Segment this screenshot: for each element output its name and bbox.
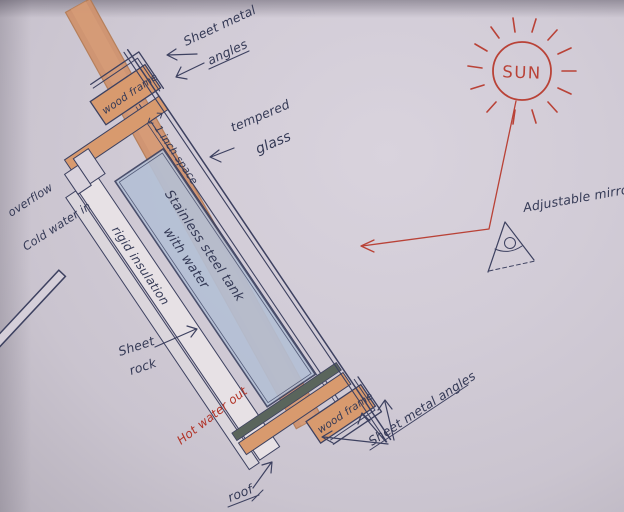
roof-arrow [253, 462, 272, 488]
sheet-metal-angles-top-label-line2: angles [205, 36, 250, 68]
tempered-glass-label-line2: glass [253, 129, 293, 158]
tempered-glass-label-line1: tempered [228, 96, 292, 134]
solar-heater-diagram: wood frame wood frame 1 inch space Stain… [0, 0, 624, 512]
sheet-metal-angles-bottom-label: Sheet metal angles [365, 368, 478, 449]
mirror-glass-shape [0, 270, 65, 413]
mirror-support-dashed-base [489, 261, 535, 271]
sheet-metal-angles-top-label-line1: Sheet metal [181, 2, 259, 49]
sun: SUN [468, 18, 576, 124]
paper-sketch-background: wood frame wood frame 1 inch space Stain… [0, 0, 624, 512]
sheet-rock-label-line2: rock [127, 355, 159, 378]
tempered-glass-arrow [210, 148, 234, 162]
mirror-support [488, 222, 535, 272]
sun-rays-to-mirror [361, 101, 516, 252]
adjustable-mirror-label: Adjustable mirror [521, 181, 624, 216]
light-ray-path [362, 101, 516, 246]
sun-label: SUN [502, 62, 542, 82]
collector-assembly: wood frame wood frame 1 inch space Stain… [17, 44, 399, 512]
adjustable-mirror [0, 270, 65, 413]
overflow-label: overflow [5, 180, 56, 220]
mirror-angle-symbol [505, 238, 516, 249]
sheet-metal-angles-top-arrows [167, 49, 204, 79]
mirror-support-legs [488, 222, 534, 272]
